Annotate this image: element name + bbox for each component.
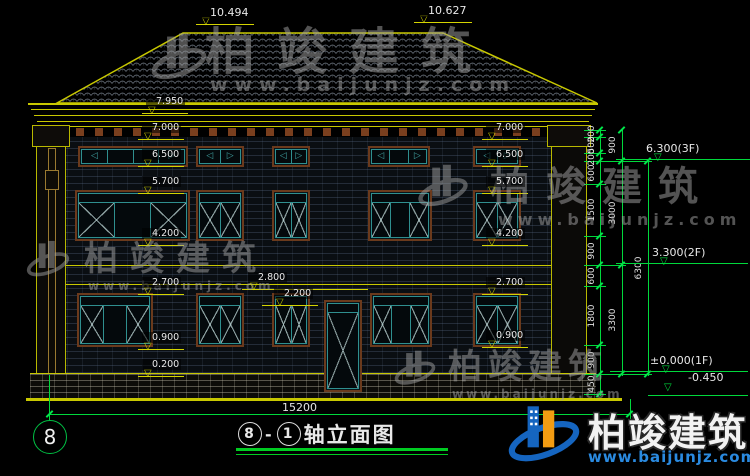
elevation-value: 7.950 xyxy=(146,96,185,107)
elevation-label: 5.700▽ xyxy=(142,176,181,188)
elevation-arrow-icon: ▽ xyxy=(276,298,284,308)
ext-line xyxy=(584,345,606,346)
elevation-arrow-icon: ▽ xyxy=(144,287,152,297)
company-logo-icon xyxy=(504,400,584,468)
axis-circle-start: 8 xyxy=(238,422,262,446)
elevation-label: 2.700▽ xyxy=(486,277,525,289)
elevation-label: 0.900▽ xyxy=(142,332,181,344)
elevation-value: -0.450 xyxy=(688,371,725,384)
entry-door xyxy=(324,300,362,392)
dim-line xyxy=(262,305,318,306)
floor-elevation-label: -0.450 ▽ xyxy=(688,371,725,384)
watermark-url: www.baijunjz.com xyxy=(498,212,741,229)
dim-value: 900 xyxy=(587,242,597,259)
elevation-value: 7.000 xyxy=(486,122,525,133)
elevation-value: 5.700 xyxy=(142,176,181,187)
dim-line xyxy=(648,395,748,396)
dim-line xyxy=(616,263,748,264)
title-underline-thin xyxy=(236,454,448,455)
sash-arrow-icon: ▷ xyxy=(221,150,241,163)
watermark-logo-icon xyxy=(392,348,438,390)
elevation-arrow-icon: ▽ xyxy=(148,106,156,116)
cornice-line xyxy=(34,115,592,116)
elevation-label: 4.200▽ xyxy=(486,228,525,240)
sash-arrow-icon: ◁ xyxy=(200,150,220,163)
dim-value: 1800 xyxy=(587,305,597,328)
elevation-value: 6.500 xyxy=(142,149,181,160)
elevation-arrow-icon: ▽ xyxy=(144,342,152,352)
elevation-label: 6.500▽ xyxy=(486,149,525,161)
drawing-title: 8 - 1 轴立面图 xyxy=(238,419,396,449)
sash-arrow-icon: ◁ xyxy=(276,150,291,163)
watermark-brand: 柏竣建筑 xyxy=(490,166,714,208)
elevation-arrow-icon: ▽ xyxy=(488,132,496,142)
right-pilaster-capital xyxy=(547,125,591,147)
company-url: www.baijunjz.com xyxy=(588,448,750,466)
elevation-label: 7.950 ▽ xyxy=(146,96,185,108)
floor-elevation-label: ±0.000(1F) ▽ xyxy=(650,354,715,367)
elevation-value: 2.800 xyxy=(248,272,287,283)
dim-value: 900 xyxy=(608,136,618,153)
watermark-logo-icon xyxy=(24,238,72,282)
elevation-value: 4.200 xyxy=(142,228,181,239)
elevation-arrow-icon: ▽ xyxy=(250,282,258,292)
left-pilaster-capital xyxy=(32,125,70,147)
dim-value: 3300 xyxy=(608,309,618,332)
elevation-value: 5.700 xyxy=(486,176,525,187)
elevation-value: 2.200 xyxy=(274,288,313,299)
window xyxy=(196,293,244,347)
sash-arrow-icon: ◁ xyxy=(372,150,389,163)
sash-arrow-icon: ▷ xyxy=(292,150,307,163)
elevation-value: 10.494 xyxy=(200,6,251,19)
elevation-value: 6.300(3F) xyxy=(646,142,701,155)
watermark-brand: 柏竣建筑 xyxy=(205,26,493,79)
elevation-label: 0.200▽ xyxy=(142,359,181,371)
elevation-drawing: ◁▷ ◁▷ ◁▷ ◁▷ ◁▷ xyxy=(0,0,750,476)
elevation-arrow-icon: ▽ xyxy=(488,238,496,248)
elevation-label: 2.700▽ xyxy=(142,277,181,289)
elevation-arrow-icon: ▽ xyxy=(144,186,152,196)
watermark-brand: 柏竣建筑 xyxy=(448,350,608,386)
elevation-value: 3.300(2F) xyxy=(652,246,707,259)
elevation-arrow-icon: ▽ xyxy=(488,287,496,297)
watermark-logo-icon xyxy=(148,30,210,86)
elevation-value: 2.700 xyxy=(486,277,525,288)
window: ◁▷ xyxy=(272,146,310,167)
watermark-url: www.baijunjz.com xyxy=(452,388,623,401)
axis-bubble: 8 xyxy=(33,420,67,454)
elevation-value: 4.200 xyxy=(486,228,525,239)
window: ◁▷ xyxy=(196,146,244,167)
elevation-arrow-icon: ▽ xyxy=(488,340,496,350)
dim-value: 6300 xyxy=(634,257,644,280)
elevation-label: 4.200▽ xyxy=(142,228,181,240)
elevation-arrow-icon: ▽ xyxy=(144,159,152,169)
downspout-hopper xyxy=(45,170,59,190)
title-text: 轴立面图 xyxy=(304,419,396,449)
watermark-brand: 柏竣建筑 xyxy=(84,242,268,278)
elevation-value: 10.627 xyxy=(418,4,469,17)
axis-number: 8 xyxy=(44,425,57,449)
eave-line xyxy=(28,103,598,105)
window xyxy=(272,190,310,241)
title-underline xyxy=(236,448,448,451)
elevation-label: 2.800▽ xyxy=(248,272,287,284)
watermark-url: www.baijunjz.com xyxy=(88,280,275,293)
elevation-value: 6.500 xyxy=(486,149,525,160)
axis-circle-end: 1 xyxy=(277,422,301,446)
elevation-label: 5.700▽ xyxy=(486,176,525,188)
elevation-arrow-icon: ▽ xyxy=(144,369,152,379)
cornice-line xyxy=(31,109,595,110)
window xyxy=(196,190,244,241)
elevation-value: 0.900 xyxy=(486,330,525,341)
dim-value: 600 xyxy=(587,267,597,284)
elevation-arrow-icon: ▽ xyxy=(664,383,672,393)
sash-arrow-icon: ◁ xyxy=(82,150,107,163)
elevation-value: ±0.000(1F) xyxy=(650,354,715,367)
floor-elevation-label: 6.300(3F) ▽ xyxy=(646,142,701,155)
title-separator: - xyxy=(265,425,274,444)
elevation-arrow-icon: ▽ xyxy=(144,238,152,248)
elevation-label: 0.900▽ xyxy=(486,330,525,342)
window xyxy=(370,293,432,347)
ext-line xyxy=(584,236,606,237)
elevation-label: 10.494 ▽ xyxy=(200,7,251,19)
elevation-label: 6.500▽ xyxy=(142,149,181,161)
elevation-label: 7.000▽ xyxy=(486,122,525,134)
elevation-label: 7.000▽ xyxy=(142,122,181,134)
elevation-value: 0.900 xyxy=(142,332,181,343)
elevation-value: 7.000 xyxy=(142,122,181,133)
dim-line xyxy=(610,371,748,372)
elevation-arrow-icon: ▽ xyxy=(488,159,496,169)
elevation-value: 0.200 xyxy=(142,359,181,370)
ext-line xyxy=(584,286,606,287)
watermark-url: www.baijunjz.com xyxy=(210,76,516,96)
elevation-label: 10.627 ▽ xyxy=(418,5,469,17)
floor-elevation-label: 3.300(2F) ▽ xyxy=(652,246,707,259)
elevation-label: 2.200▽ xyxy=(274,288,313,300)
elevation-value: 2.700 xyxy=(142,277,181,288)
watermark-logo-icon xyxy=(415,162,471,212)
elevation-arrow-icon: ▽ xyxy=(144,132,152,142)
dim-line xyxy=(616,159,750,160)
total-width-value: 15200 xyxy=(282,401,317,414)
elevation-arrow-icon: ▽ xyxy=(488,186,496,196)
